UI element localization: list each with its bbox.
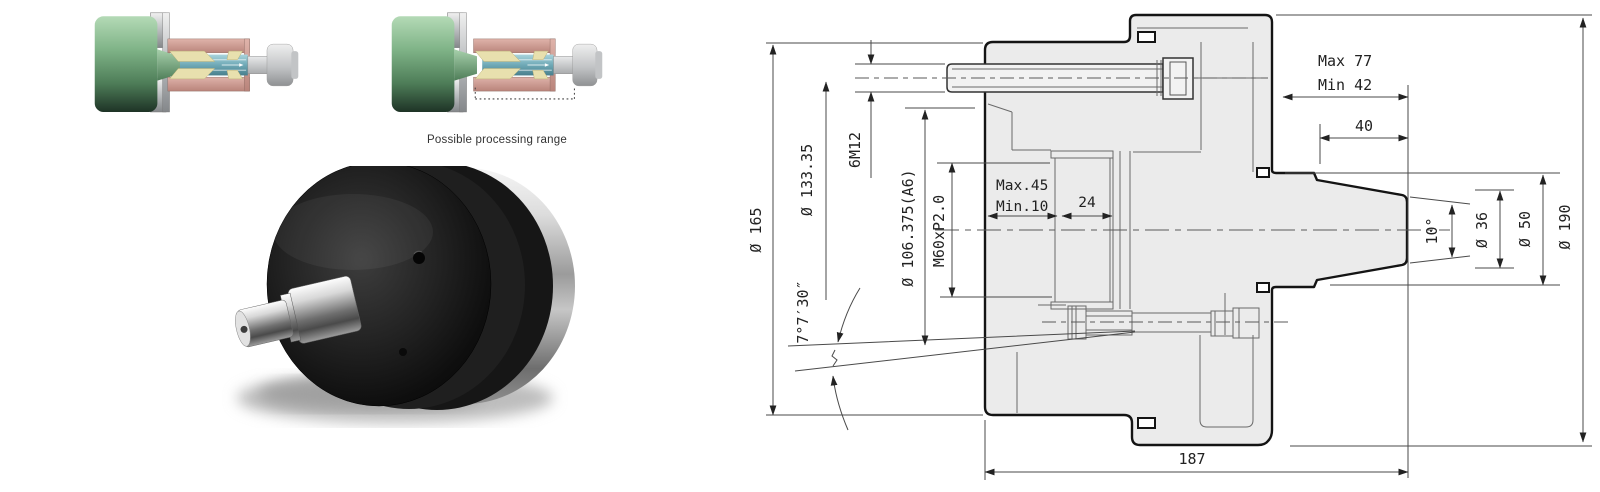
workpiece-shaft [554,56,575,73]
spindle-green [392,16,455,112]
dim-min42-label: Min 42 [1318,76,1372,94]
cutaway-render-extended-svg [390,6,604,124]
screw-hole-2 [399,348,407,356]
dim-min10-label: Min.10 [996,199,1048,215]
spindle-green [95,16,158,112]
workpiece-shaft [248,56,269,73]
workpiece-cap [267,44,293,86]
dim-dia36-label: Ø 36 [1473,212,1491,248]
dim-angle10-label: 10° [1423,217,1441,244]
dim-thread-label: M60xP2.0 [930,195,948,267]
product-photo [203,166,595,436]
dim-dia106-label: Ø 106.375(A6) [899,169,917,286]
spindle-nose [454,49,477,80]
technical-drawing: Ø 165 Ø 133.35 6M12 Ø 106.375(A6) M60xP2… [720,0,1600,492]
product-photo-svg [203,166,595,436]
cutaway-render-retracted-svg [93,6,307,124]
dim-187-label: 187 [1178,450,1205,468]
dim-24-label: 24 [1078,195,1096,211]
dim-dia133-label: Ø 133.35 [798,144,816,216]
workpiece-cap [573,44,597,86]
face-highlight [273,194,433,270]
dim-dia165-label: Ø 165 [747,207,765,252]
dim-angle7-label: 7°7′30″ [794,280,812,343]
page: Possible processing range [0,0,1600,492]
dim-40-label: 40 [1355,117,1373,135]
collet-assembly [168,39,298,91]
dim-dia190-label: Ø 190 [1556,204,1574,249]
dim-dia50-label: Ø 50 [1516,211,1534,247]
technical-drawing-svg: Ø 165 Ø 133.35 6M12 Ø 106.375(A6) M60xP2… [720,0,1600,492]
dim-bolts-label: 6M12 [846,132,864,168]
screw-hole [413,252,425,264]
processing-range-caption: Possible processing range [390,134,604,146]
collet-assembly-extended [474,39,603,91]
workpiece-tip [291,51,298,79]
dim-max77-label: Max 77 [1318,52,1372,70]
workpiece-tip [595,51,602,79]
cutaway-render-retracted [93,6,307,124]
dim-max45-label: Max.45 [996,178,1048,194]
cutaway-render-extended [390,6,604,124]
